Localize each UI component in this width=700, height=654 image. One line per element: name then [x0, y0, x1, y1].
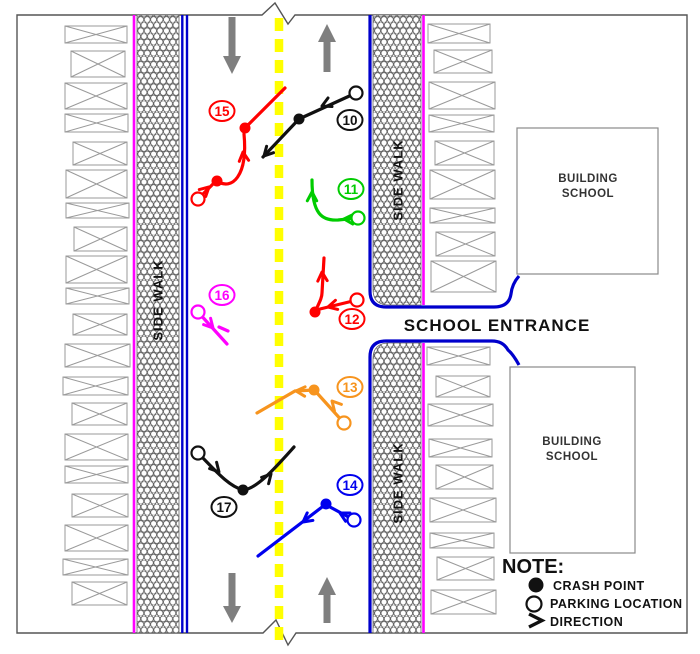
parking-location-marker: [350, 87, 363, 100]
parking-stall: [431, 261, 496, 292]
parking-location-marker: [352, 212, 365, 225]
parking-location-marker: [338, 417, 351, 430]
direction-arrowhead: [322, 98, 332, 107]
parking-stall: [434, 50, 492, 73]
crash-point-marker: [240, 123, 251, 134]
case-label-10: 10: [338, 110, 363, 130]
building-school-top: BUILDING SCHOOL: [517, 128, 658, 274]
trajectory-14: 14: [258, 475, 363, 556]
parking-stall: [429, 82, 495, 109]
legend-item-parking-location: PARKING LOCATION: [550, 597, 683, 611]
crash-point-marker: [212, 176, 223, 187]
building-school-bottom: BUILDING SCHOOL: [510, 367, 635, 553]
parking-stall: [72, 582, 127, 605]
parking-stall: [66, 288, 129, 304]
parking-location-marker: [192, 447, 205, 460]
parking-stall: [430, 498, 496, 522]
building-bottom-label-line2: SCHOOL: [546, 451, 598, 463]
parking-stall: [428, 24, 490, 43]
case-label-12: 12: [340, 309, 365, 329]
lane-arrow-top-down: [223, 17, 241, 74]
crash-site-diagram: BUILDING SCHOOL BUILDING SCHOOL SCHOOL E…: [0, 0, 700, 654]
svg-text:14: 14: [342, 478, 358, 493]
direction-icon: [529, 614, 542, 627]
direction-arrowhead: [332, 401, 341, 411]
diagram-svg: BUILDING SCHOOL BUILDING SCHOOL SCHOOL E…: [0, 0, 700, 654]
school-entrance-label: SCHOOL ENTRANCE: [404, 316, 591, 335]
lane-arrow-bottom-down: [223, 573, 241, 623]
parking-stall: [66, 170, 127, 198]
parking-stall: [72, 494, 128, 517]
parking-stall: [65, 466, 128, 483]
svg-text:13: 13: [342, 380, 358, 395]
parking-stall: [435, 141, 494, 165]
parking-stall: [73, 314, 127, 335]
parking-stall: [65, 114, 128, 132]
sidewalk-label-right-bottom: SIDE WALK: [391, 442, 406, 523]
crash-point-marker: [238, 485, 249, 496]
parking-stall: [427, 347, 490, 365]
parking-stall: [65, 83, 127, 109]
parking-stall: [431, 590, 496, 614]
parking-stall: [65, 26, 127, 43]
case-label-15: 15: [210, 101, 235, 121]
parking-stall: [436, 465, 493, 489]
legend-item-direction: DIRECTION: [550, 615, 623, 629]
parking-stall: [66, 203, 129, 218]
parking-stall: [72, 403, 127, 425]
parking-stall: [71, 51, 125, 77]
parking-stall: [73, 142, 127, 165]
parking-stall: [429, 439, 492, 457]
parking-stall: [430, 208, 495, 223]
svg-text:17: 17: [216, 500, 231, 515]
parking-stall: [63, 377, 128, 395]
crash-point-marker: [321, 499, 332, 510]
parking-stall: [65, 344, 130, 367]
parking-location-marker: [192, 306, 205, 319]
building-top-label-line1: BUILDING: [558, 173, 618, 185]
building-top-label-line2: SCHOOL: [562, 188, 614, 200]
parking-stall: [74, 227, 127, 251]
parking-stall: [430, 170, 495, 199]
svg-text:12: 12: [344, 312, 359, 327]
case-label-13: 13: [338, 377, 363, 397]
lane-arrow-bottom-up: [318, 577, 336, 623]
case-label-16: 16: [210, 285, 235, 305]
parking-location-marker: [351, 294, 364, 307]
legend-title: NOTE:: [502, 556, 564, 578]
crash-point-icon: [529, 578, 544, 593]
parking-stall: [429, 115, 494, 132]
crash-point-marker: [309, 385, 320, 396]
legend-item-crash-point: CRASH POINT: [553, 579, 645, 593]
svg-text:16: 16: [214, 288, 230, 303]
crash-point-marker: [294, 114, 305, 125]
parking-stall: [437, 557, 494, 580]
lane-arrow-top-up: [318, 24, 336, 72]
svg-text:11: 11: [344, 182, 359, 197]
parking-stall: [436, 232, 495, 256]
legend: NOTE: CRASH POINT PARKING LOCATION DIREC…: [502, 556, 683, 629]
parking-stall: [428, 404, 493, 426]
case-label-17: 17: [212, 497, 237, 517]
parking-stall: [66, 256, 127, 283]
trajectory-11: 11: [307, 179, 364, 225]
trajectory-12: 12: [310, 258, 365, 329]
sidewalk-label-right-top: SIDE WALK: [391, 139, 406, 220]
parking-location-icon: [527, 597, 542, 612]
svg-text:15: 15: [214, 104, 230, 119]
case-label-11: 11: [339, 179, 364, 199]
trajectory-13: 13: [257, 377, 363, 430]
parking-stall: [436, 376, 490, 397]
parking-location-marker: [192, 193, 205, 206]
parking-stall: [430, 533, 494, 548]
sidewalk-label-left: SIDE WALK: [151, 259, 166, 340]
crash-point-marker: [310, 307, 321, 318]
case-label-14: 14: [338, 475, 363, 495]
parking-stall: [63, 559, 128, 575]
building-bottom-label-line1: BUILDING: [542, 436, 602, 448]
parking-location-marker: [348, 514, 361, 527]
parking-stall: [65, 434, 128, 460]
parking-stall: [65, 525, 128, 551]
trajectory-16: 16: [192, 285, 235, 344]
svg-text:10: 10: [342, 113, 357, 128]
